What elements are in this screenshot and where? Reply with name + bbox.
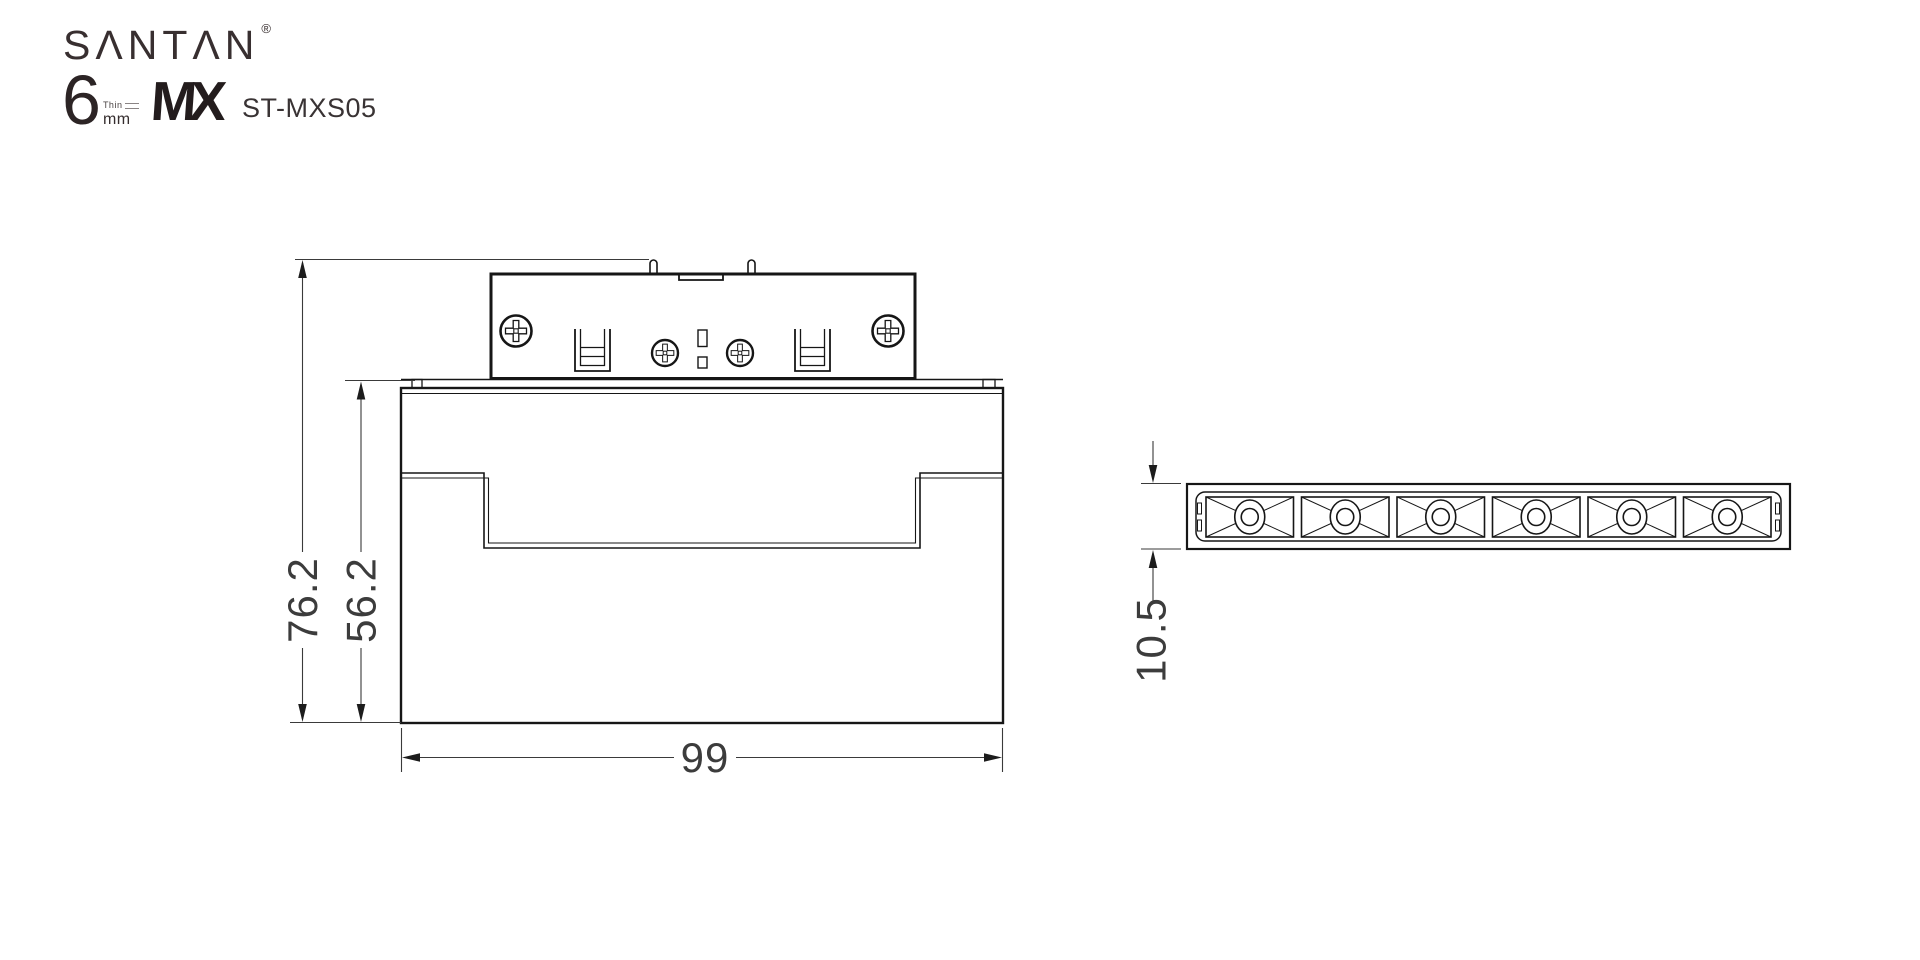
led-cell — [1588, 497, 1676, 537]
center-slot-lower — [698, 357, 707, 368]
led-cell — [1302, 497, 1390, 537]
spring-clip-left — [575, 329, 610, 371]
led-cell — [1397, 497, 1485, 537]
dimension-total-height: 76.2 — [279, 260, 649, 723]
dim-99: 99 — [681, 734, 730, 781]
front-view: 76.2 56.2 99 — [279, 260, 1003, 782]
dim-76-2: 76.2 — [279, 557, 326, 643]
dimension-bar-height: 10.5 — [1128, 441, 1182, 683]
edge-tick — [1198, 520, 1202, 531]
led-cell — [1493, 497, 1581, 537]
dimension-body-height: 56.2 — [338, 381, 416, 723]
edge-tick — [1776, 503, 1780, 514]
dim-56-2: 56.2 — [338, 557, 385, 643]
screw-left — [501, 316, 532, 347]
led-cell-array — [1206, 497, 1771, 537]
led-cell — [1684, 497, 1772, 537]
screw-right — [873, 316, 904, 347]
page: { "brand": { "name": "SANTAN", "display"… — [0, 0, 1920, 960]
driver-pin-left — [650, 260, 657, 274]
led-cell — [1206, 497, 1294, 537]
edge-tick — [1198, 503, 1202, 514]
technical-drawing: 76.2 56.2 99 — [0, 0, 1920, 960]
bottom-view: 10.5 — [1128, 441, 1791, 683]
dimension-width: 99 — [402, 728, 1003, 781]
bar-inner-frame — [1196, 492, 1781, 541]
channel-inner-profile — [401, 478, 1003, 543]
driver-pin-right — [748, 260, 755, 274]
body-outline — [401, 388, 1003, 723]
bar-outline — [1187, 484, 1790, 549]
center-slot-upper — [698, 330, 707, 347]
dim-10-5: 10.5 — [1128, 597, 1175, 683]
body-end-tab-right — [983, 380, 995, 389]
spring-clip-right — [795, 329, 830, 371]
driver-box — [491, 274, 915, 379]
screw-center-left — [652, 340, 678, 366]
channel-outer-profile — [401, 473, 1003, 548]
edge-tick — [1776, 520, 1780, 531]
driver-top-notch — [679, 276, 723, 281]
screw-center-right — [727, 340, 753, 366]
